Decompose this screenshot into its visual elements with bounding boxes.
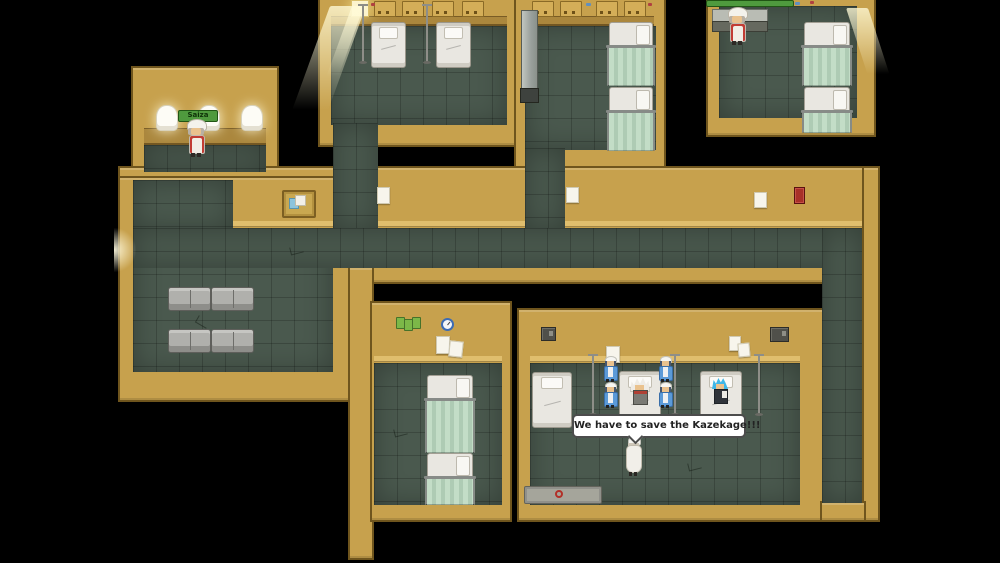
hospital-bed — [371, 22, 406, 68]
hospital-bed — [436, 22, 471, 68]
waiting-sofa — [168, 287, 211, 311]
mid-room-wainscot — [374, 356, 502, 362]
right-corridor-bottom-wall — [820, 501, 866, 522]
wall-clock-icon — [441, 318, 454, 331]
wall-note — [448, 340, 464, 357]
cafe-attendant-character[interactable] — [185, 119, 207, 159]
iv-pole — [758, 354, 760, 414]
iv-pole — [674, 354, 676, 414]
hospital-bed-curtained — [801, 87, 853, 133]
ward-b-doorway[interactable] — [525, 148, 565, 230]
right-outer-wall — [862, 166, 880, 522]
waiting-sofa — [168, 329, 211, 353]
waiting-sofa — [211, 287, 254, 311]
wall-note — [754, 192, 767, 208]
shelf-trinket — [795, 2, 800, 5]
shelf-trinket — [810, 1, 814, 4]
wall-cabinet — [462, 1, 484, 17]
shelf-trinket — [371, 3, 375, 6]
nurse-character[interactable] — [657, 356, 673, 382]
wall-cabinet — [374, 1, 396, 17]
locker-base — [520, 88, 539, 103]
wall-note — [737, 343, 750, 358]
game-viewport[interactable]: Saiza — [0, 0, 1000, 563]
attendant-character[interactable] — [726, 7, 748, 47]
chart-card — [412, 317, 421, 329]
waiting-room-floor-upper — [133, 180, 233, 230]
hospital-bed-curtained — [801, 22, 853, 87]
shelf-trinket — [586, 3, 591, 6]
hospital-bed-curtained — [424, 375, 476, 455]
table-lamp — [156, 105, 178, 131]
window-light — [114, 228, 136, 272]
speech-bubble: We have to save the Kazekage!!! — [572, 414, 746, 438]
nurse-character[interactable] — [657, 382, 673, 408]
table-lamp — [241, 105, 263, 131]
iv-pole — [426, 4, 428, 62]
corridor-wainscot — [133, 221, 862, 227]
wall-cabinet — [560, 1, 582, 17]
wall-switch — [770, 327, 789, 342]
ward-a-floor — [331, 26, 507, 125]
iv-pole — [362, 4, 364, 62]
entry-mat — [524, 486, 602, 504]
shelf-trinket — [648, 3, 652, 6]
waiting-sofa — [211, 329, 254, 353]
wall-switch — [541, 327, 556, 341]
ward-a-doorway[interactable] — [333, 123, 378, 230]
hospital-bed — [532, 372, 572, 428]
hospital-bed-curtained — [424, 453, 476, 505]
fire-alarm-box — [794, 187, 805, 204]
wall-cabinet — [402, 1, 424, 17]
hospital-bed-curtained — [606, 22, 656, 87]
wall-cabinet — [432, 1, 454, 17]
wall-cabinet — [596, 1, 618, 17]
supply-locker — [521, 10, 538, 92]
nurse-character[interactable] — [602, 382, 618, 408]
white-haired-patient-character[interactable] — [630, 377, 649, 404]
wall-cabinet — [624, 1, 646, 17]
wall-note — [566, 187, 579, 203]
wall-note — [377, 187, 390, 204]
blue-haired-patient-character[interactable] — [712, 377, 729, 403]
bulletin-board[interactable] — [282, 190, 316, 218]
corridor-floor — [133, 228, 862, 268]
pinned-paper-white — [295, 195, 306, 206]
nurse-character[interactable] — [602, 356, 618, 382]
hospital-bed-curtained — [606, 87, 656, 152]
name-tag-cutoff — [706, 0, 794, 7]
iv-pole — [592, 354, 594, 414]
right-corridor-floor — [822, 228, 862, 503]
